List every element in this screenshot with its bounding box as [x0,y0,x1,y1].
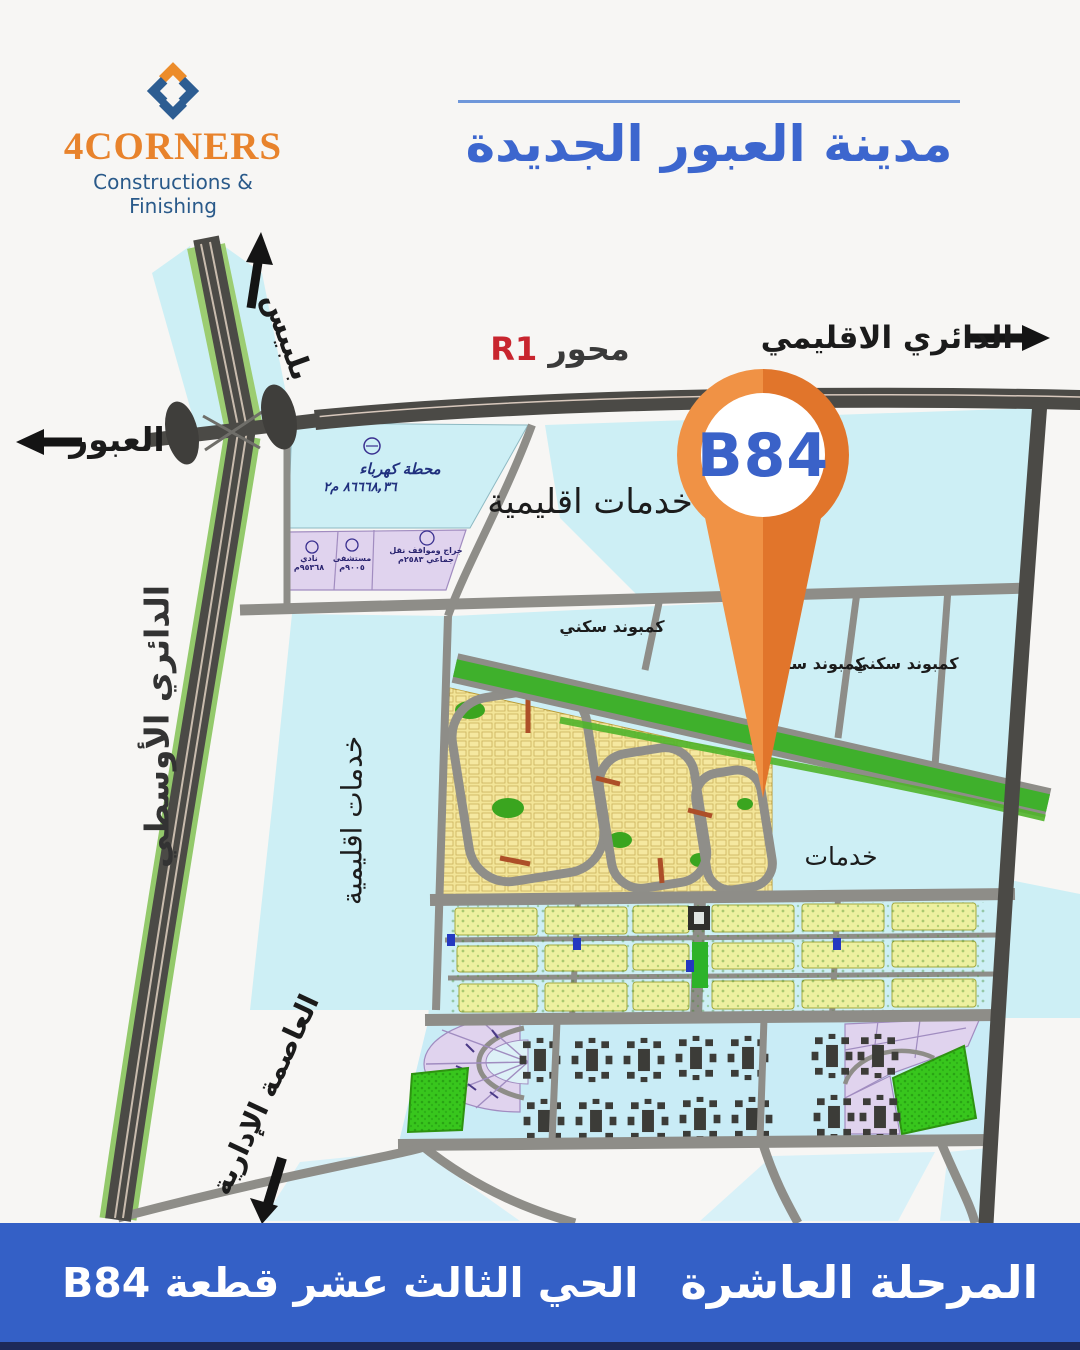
footer-bar: المرحلة العاشرة الحي الثالث عشر قطعة B84 [0,1223,1080,1350]
title-divider [458,100,960,103]
r1-text: R1 [490,330,537,368]
brand-tagline: Constructions & Finishing [58,170,288,218]
footer-district-label: الحي الثالث عشر قطعة B84 [62,1223,638,1342]
label-regional-ring: الدائري الاقليمي [763,320,1013,356]
label-middle-ring: الدائري الأوسطي [138,567,177,887]
footer-strip [0,1342,1080,1350]
title-block: مدينة العبور الجديدة [458,100,960,172]
mehwar-text: محور [548,330,629,368]
map-road-labels: بلبيس العبور محور R1 الدائري الاقليمي ال… [0,218,1080,1223]
pin-label: B84 [693,421,833,491]
footer-phase-label: المرحلة العاشرة [680,1223,1038,1342]
brand-logo-icon [145,60,201,122]
label-belbeis: بلبيس [250,274,324,399]
label-obour: العبور [62,420,172,459]
label-mehwar-r1: محور R1 [470,330,650,368]
brand-logo: 4CORNERS Constructions & Finishing [58,60,288,218]
label-admin-capital: العاصمة الإدارية [197,974,333,1215]
brand-name: 4CORNERS [58,124,288,169]
flyer: 4CORNERS Constructions & Finishing مدينة… [0,0,1080,1350]
page-title: مدينة العبور الجديدة [458,117,960,172]
map-area: خدمات اقليمية خدمات اقليمية خدمات كمبوند… [0,218,1080,1223]
